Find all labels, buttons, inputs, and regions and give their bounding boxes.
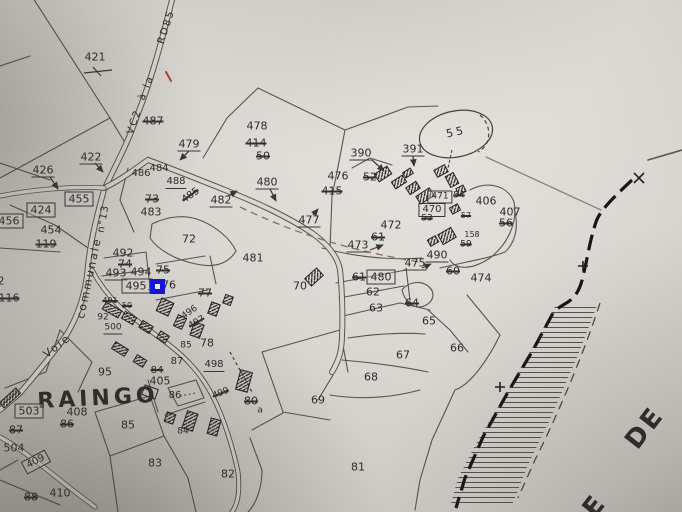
map-label-55: 55: [445, 125, 467, 140]
map-label-75: 75: [156, 265, 170, 276]
map-label-63: 63: [369, 303, 383, 314]
map-label-77: 77: [198, 288, 212, 299]
map-label-504: 504: [4, 443, 25, 454]
map-label-n-13: n°13: [97, 204, 112, 233]
map-label-484: 484: [149, 164, 168, 174]
map-label-409: 409: [21, 449, 51, 474]
map-label-78: 78: [200, 338, 214, 349]
map-label-56: 56: [499, 218, 513, 229]
map-label-406: 406: [476, 196, 497, 207]
map-label-86: 86: [169, 391, 182, 401]
map-label-de: DE: [621, 402, 669, 454]
map-label-414: 414: [246, 138, 267, 149]
map-label-81: 81: [351, 462, 365, 473]
map-label-e: E: [578, 492, 609, 512]
map-label-476: 476: [328, 171, 349, 182]
map-label-477: 477: [298, 215, 321, 228]
map-label-59: 59: [460, 241, 471, 250]
map-label-66: 66: [450, 343, 464, 354]
map-label-69: 69: [311, 395, 325, 406]
map-label-80: 80: [244, 396, 258, 407]
map-label-82: 82: [221, 469, 235, 480]
map-label-491: 491: [102, 297, 117, 305]
map-label-72: 72: [182, 234, 196, 245]
map-label-85: 85: [180, 342, 191, 351]
map-label-424: 424: [27, 203, 56, 218]
map-label-85: 85: [121, 420, 135, 431]
map-label-61: 61: [352, 272, 366, 283]
map-label-495: 495: [122, 279, 151, 294]
map-label-83: 83: [148, 458, 162, 469]
map-label-57: 57: [461, 212, 471, 220]
map-label-422: 422: [80, 152, 103, 165]
map-label-456: 456: [0, 214, 24, 229]
map-label-67: 67: [396, 350, 410, 361]
map-label-119: 119: [36, 239, 57, 250]
map-label-116: 116: [0, 293, 20, 304]
map-label-481: 481: [243, 253, 264, 264]
map-label-485: 485: [180, 186, 201, 205]
map-label--la: à la: [137, 74, 156, 102]
map-label-65: 65: [422, 316, 436, 327]
map-label-50: 50: [256, 151, 270, 162]
map-label-478: 478: [247, 121, 268, 132]
map-label-480: 480: [367, 270, 396, 285]
map-label-503: 503: [15, 404, 44, 419]
map-label-487: 487: [143, 116, 164, 127]
map-label-62: 62: [366, 287, 380, 298]
map-label-voie: Voie: [41, 332, 72, 360]
map-label-471: 471: [427, 191, 452, 204]
map-label-60: 60: [446, 266, 460, 277]
map-label-88: 88: [24, 492, 38, 503]
selection-cursor-center: [155, 284, 160, 289]
labels-layer: 4214874794224264864844884854824804554244…: [0, 0, 682, 512]
map-label-498: 498: [203, 360, 224, 372]
map-label-415: 415: [322, 186, 343, 197]
map-label-408: 408: [67, 407, 88, 418]
map-label-452: 452: [0, 276, 5, 287]
map-label-87: 87: [171, 357, 184, 367]
map-label-86: 86: [60, 419, 74, 430]
map-label-426: 426: [32, 165, 55, 178]
map-label-483: 483: [141, 207, 162, 218]
map-label-rd85: RD85: [157, 9, 177, 46]
map-label-472: 472: [381, 220, 402, 231]
map-label-87: 87: [9, 425, 23, 436]
map-label-95: 95: [98, 367, 112, 378]
map-label-communale: communale: [75, 236, 103, 319]
map-label-52: 52: [363, 172, 377, 183]
map-label-473: 473: [347, 240, 370, 253]
selection-cursor[interactable]: [150, 279, 165, 294]
map-label-490: 490: [426, 250, 449, 263]
map-label-390: 390: [350, 148, 373, 161]
map-label-vc2: VC2: [126, 108, 144, 136]
map-label-455: 455: [65, 192, 94, 207]
map-label-raingo: RAINGO: [37, 385, 159, 413]
map-label-499: 499: [211, 387, 230, 402]
map-label-410: 410: [50, 488, 71, 499]
map-label-158: 158: [464, 231, 479, 239]
map-label-a: a: [257, 407, 263, 416]
map-label-61: 61: [371, 232, 385, 243]
map-label-482: 482: [210, 195, 233, 208]
map-label-50: 50: [122, 302, 132, 310]
map-label-421: 421: [85, 52, 106, 63]
map-label-54: 54: [453, 192, 464, 201]
map-label-64: 64: [405, 298, 419, 309]
map-label-73: 73: [145, 194, 159, 205]
map-label-454: 454: [41, 225, 62, 236]
map-label-84: 84: [177, 428, 188, 437]
map-label-53: 53: [421, 215, 432, 224]
map-label-391: 391: [402, 144, 425, 157]
map-label-474: 474: [471, 273, 492, 284]
cadastral-map: 4214874794224264864844884854824804554244…: [0, 0, 682, 512]
map-label-480: 480: [256, 177, 279, 190]
map-label-500: 500: [103, 324, 122, 335]
map-label-70: 70: [293, 281, 307, 292]
map-label-479: 479: [178, 139, 201, 152]
map-label-488: 488: [165, 177, 186, 189]
map-label-92: 92: [97, 314, 108, 323]
map-label-68: 68: [364, 372, 378, 383]
map-label-475: 475: [404, 258, 427, 271]
map-label-486: 486: [131, 169, 150, 179]
